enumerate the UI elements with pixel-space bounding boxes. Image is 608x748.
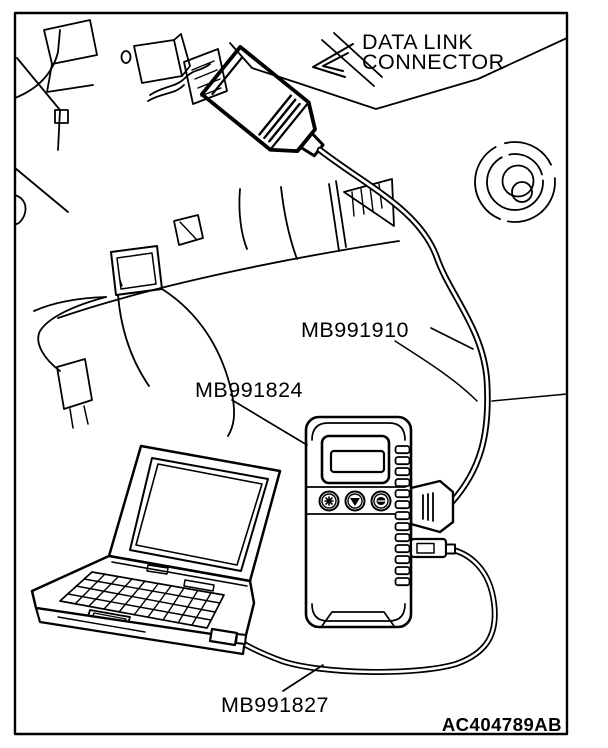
label-data-link-line2: CONNECTOR <box>362 50 505 74</box>
scan-tool-drawing <box>306 417 411 627</box>
power-button-icon <box>325 497 333 505</box>
laptop-drawing <box>32 446 280 654</box>
figure-canvas: DATA LINK CONNECTOR MB991910 MB991824 MB… <box>0 0 608 748</box>
scan-tool-buttons <box>320 492 391 511</box>
laptop-cable-plug <box>210 629 237 645</box>
cable-mb991910-plug <box>411 481 453 532</box>
steering-column-circles <box>475 142 555 222</box>
label-mb991827: MB991827 <box>221 693 329 717</box>
service-manual-figure: DATA LINK CONNECTOR MB991910 MB991824 MB… <box>0 0 608 748</box>
figure-code: AC404789AB <box>442 714 562 735</box>
label-mb991824: MB991824 <box>195 378 303 402</box>
label-mb991910: MB991910 <box>301 318 409 342</box>
cable-mb991827-plug <box>411 539 455 557</box>
